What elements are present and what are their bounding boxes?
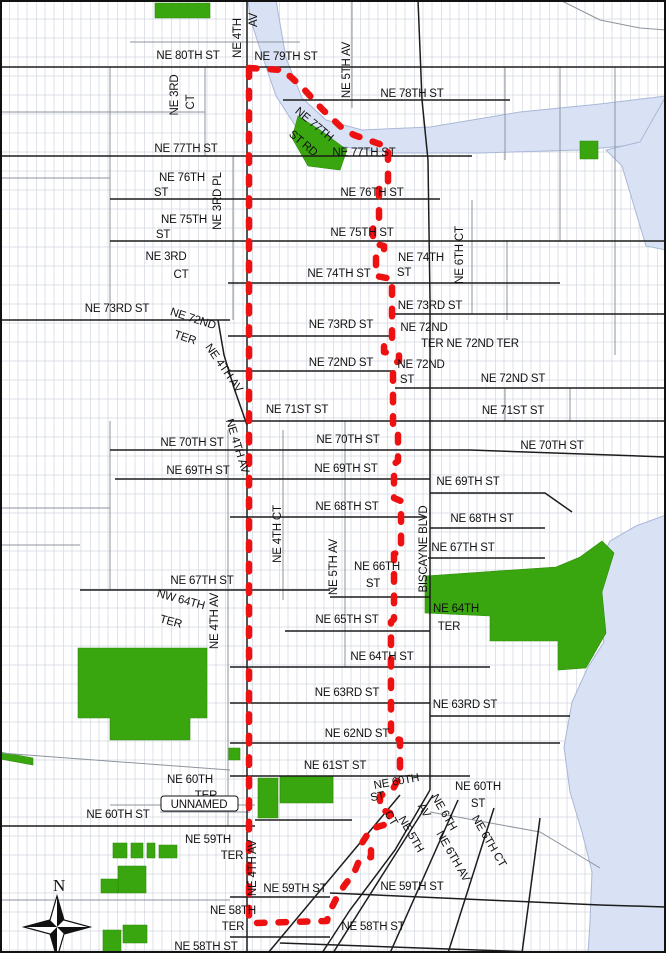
park-area bbox=[103, 930, 121, 952]
street-label: NE 75TH ST bbox=[330, 227, 393, 239]
street-label: NE 80TH ST bbox=[156, 50, 219, 62]
street-label: NE 59TH ST bbox=[380, 881, 443, 893]
zoning-district-map: NE 80TH STNE 4THAVNE 79TH STNE 5TH AVNE … bbox=[0, 0, 666, 953]
street-label: NE 72ND bbox=[397, 359, 444, 371]
street-label: NE 73RD ST bbox=[85, 303, 150, 315]
park-area bbox=[258, 778, 278, 818]
street-label: NE 72ND ST bbox=[481, 373, 546, 385]
street-label: NE 63RD ST bbox=[315, 687, 380, 699]
map-canvas: NE 80TH STNE 4THAVNE 79TH STNE 5TH AVNE … bbox=[0, 0, 666, 953]
park-area bbox=[147, 843, 155, 858]
street-label: AV bbox=[248, 12, 260, 27]
park-area bbox=[101, 879, 118, 893]
street-label: NE 68TH ST bbox=[450, 513, 513, 525]
street-label: ST bbox=[369, 790, 385, 804]
street-label: TER bbox=[221, 850, 243, 862]
street-label: NE 67TH ST bbox=[170, 575, 233, 587]
street-label: NE 69TH ST bbox=[436, 476, 499, 488]
park-area bbox=[131, 843, 143, 858]
street-label: BISCAYNE BLVD bbox=[418, 505, 430, 592]
park-area bbox=[580, 141, 598, 159]
street-label: ST bbox=[156, 229, 170, 241]
street-label: NE 65TH ST bbox=[315, 614, 378, 626]
street-label: ST bbox=[154, 187, 168, 199]
street-label: NE 76TH ST bbox=[340, 187, 403, 199]
street-label: NE 59TH bbox=[185, 834, 231, 846]
street-label: NE 72ND ST bbox=[309, 357, 374, 369]
street-label: NE 70TH ST bbox=[316, 434, 379, 446]
street-label: TER NE 72ND TER bbox=[421, 338, 519, 350]
street-label: NE 67TH ST bbox=[431, 542, 494, 554]
street-label: NE 68TH ST bbox=[315, 501, 378, 513]
street-label: NE 60TH bbox=[167, 774, 213, 786]
street-label: CT bbox=[174, 269, 189, 281]
street-label: NE 3RD bbox=[169, 75, 181, 116]
street-label: TER bbox=[222, 921, 244, 933]
street-label: NE 5TH AV bbox=[341, 41, 353, 98]
park-area bbox=[228, 748, 240, 760]
street-label: NE 70TH ST bbox=[520, 440, 583, 452]
street-label: NE 76TH bbox=[159, 172, 205, 184]
street-label: NE 60TH ST bbox=[86, 809, 149, 821]
street-label: NE 73RD ST bbox=[309, 319, 374, 331]
park-area bbox=[155, 3, 210, 18]
street-label: NE 69TH ST bbox=[166, 465, 229, 477]
street-label: NE 6TH CT bbox=[454, 226, 466, 284]
park-area bbox=[280, 776, 333, 803]
street-label: ST bbox=[397, 267, 411, 279]
street-label: NE 70TH ST bbox=[160, 437, 223, 449]
street-label: NE 58TH ST bbox=[341, 921, 404, 933]
street-label: NE 60TH bbox=[455, 781, 501, 793]
street-label: NE 75TH bbox=[161, 214, 207, 226]
street-label: NE 4TH AV bbox=[247, 839, 259, 896]
street-label: NE 61ST ST bbox=[304, 760, 367, 772]
street-label: NE 73RD ST bbox=[398, 300, 463, 312]
street-label: NE 4TH AV bbox=[209, 592, 221, 649]
street-label: UNNAMED bbox=[171, 799, 228, 811]
street-label: NE 79TH ST bbox=[254, 51, 317, 63]
street-label: NE 63RD ST bbox=[433, 699, 498, 711]
street-label: NE 69TH ST bbox=[314, 463, 377, 475]
street-label: NE 72ND bbox=[400, 322, 447, 334]
street-label: NE 58TH bbox=[210, 905, 256, 917]
park-area bbox=[159, 845, 177, 858]
street-label: CT bbox=[185, 94, 197, 109]
street-label: NE 71ST ST bbox=[266, 404, 329, 416]
street-label: NE 64TH bbox=[433, 603, 479, 615]
park-area bbox=[113, 843, 127, 858]
street-label: NE 74TH bbox=[398, 252, 444, 264]
park-area bbox=[118, 866, 146, 893]
street-label: TER bbox=[438, 621, 460, 633]
street-label: NE 3RD PL bbox=[212, 171, 224, 229]
street-label: NE 77TH ST bbox=[154, 143, 217, 155]
street-label: ST bbox=[366, 578, 380, 590]
street-label: NE 3RD bbox=[146, 251, 187, 263]
street-label: ST bbox=[471, 798, 485, 810]
street-label: NE 4TH bbox=[232, 18, 244, 58]
park-area bbox=[123, 925, 147, 943]
street-label: NE 59TH ST bbox=[263, 883, 326, 895]
street-label: NE 74TH ST bbox=[307, 268, 370, 280]
street-label: NE 4TH CT bbox=[272, 505, 284, 563]
street-label: NE 64TH ST bbox=[350, 651, 413, 663]
street-label: NE 5TH AV bbox=[328, 538, 340, 595]
north-label: N bbox=[53, 876, 65, 895]
street-label: NE 77TH ST bbox=[332, 147, 395, 159]
street-label: ST bbox=[400, 374, 414, 386]
street-label: NE 62ND ST bbox=[325, 728, 390, 740]
street-label: NE 66TH bbox=[354, 561, 400, 573]
street-label: NE 71ST ST bbox=[482, 405, 545, 417]
street-label: NE 78TH ST bbox=[380, 88, 443, 100]
